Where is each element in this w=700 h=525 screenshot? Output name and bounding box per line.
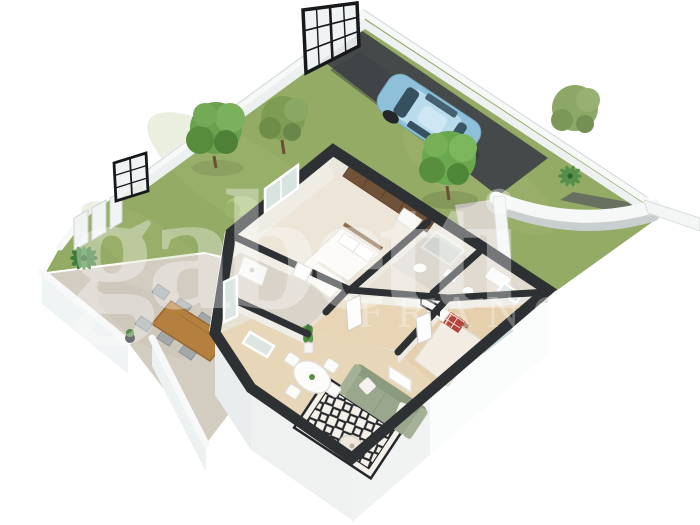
floor-plan-canvas: gabetti FRANCHISING <box>0 0 700 525</box>
table-plant <box>309 374 315 380</box>
floor-plan-image: gabetti FRANCHISING <box>0 0 700 525</box>
table-decor <box>350 444 355 449</box>
watermark-secondary: FRANCHISING <box>358 286 700 337</box>
tree-behind-wall <box>551 85 600 133</box>
